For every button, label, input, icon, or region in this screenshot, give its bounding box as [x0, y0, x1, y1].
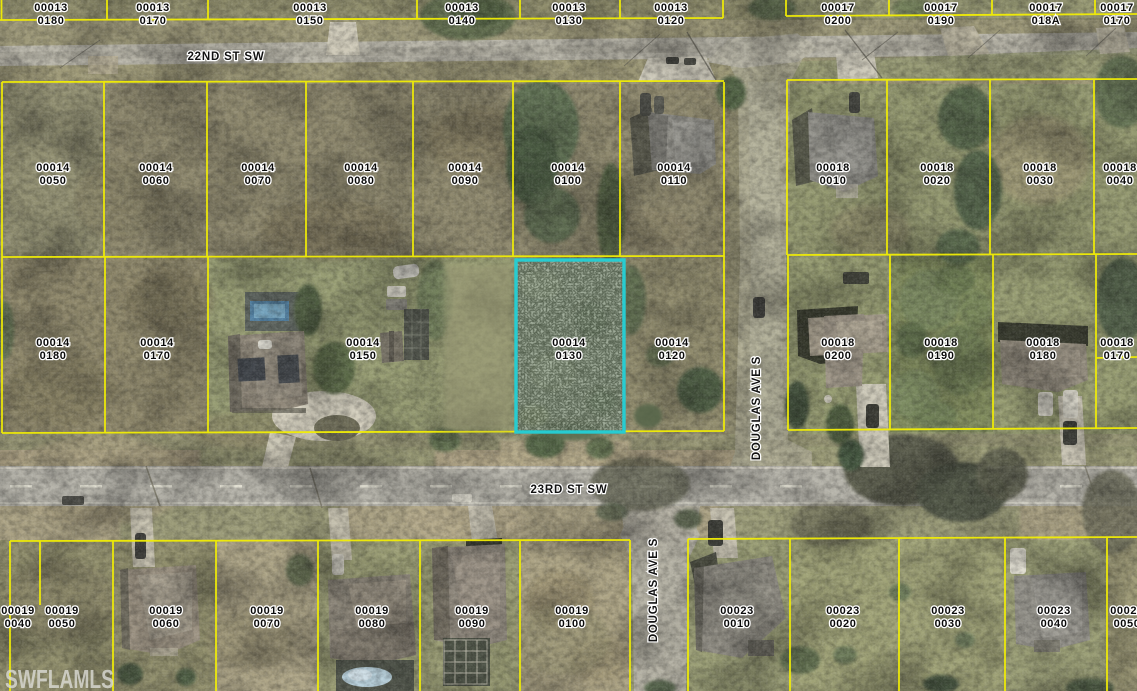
svg-text:000140130: 000140130 — [552, 337, 586, 362]
svg-text:000170190: 000170190 — [924, 2, 958, 27]
svg-text:000130130: 000130130 — [552, 2, 586, 27]
svg-text:DOUGLAS AVE S: DOUGLAS AVE S — [751, 356, 763, 460]
svg-text:000140180: 000140180 — [36, 337, 70, 362]
svg-text:000190100: 000190100 — [555, 605, 589, 630]
svg-text:22ND ST SW: 22ND ST SW — [187, 51, 264, 63]
svg-text:000170170: 000170170 — [1100, 2, 1134, 27]
svg-text:000130120: 000130120 — [654, 2, 688, 27]
svg-text:000140150: 000140150 — [346, 337, 380, 362]
svg-text:000230010: 000230010 — [720, 605, 754, 630]
svg-text:000140090: 000140090 — [448, 162, 482, 187]
svg-text:000190040: 000190040 — [1, 605, 35, 630]
svg-text:000140080: 000140080 — [344, 162, 378, 187]
svg-text:000130140: 000130140 — [445, 2, 479, 27]
svg-text:000140100: 000140100 — [551, 162, 585, 187]
svg-text:000180030: 000180030 — [1023, 162, 1057, 187]
svg-text:000180200: 000180200 — [821, 337, 855, 362]
svg-text:000140120: 000140120 — [655, 337, 689, 362]
svg-text:000140070: 000140070 — [241, 162, 275, 187]
svg-text:000140170: 000140170 — [140, 337, 174, 362]
svg-text:000190050: 000190050 — [45, 605, 79, 630]
svg-text:23RD ST SW: 23RD ST SW — [530, 484, 607, 496]
svg-text:000190070: 000190070 — [250, 605, 284, 630]
svg-text:000140110: 000140110 — [657, 162, 691, 187]
svg-text:000190080: 000190080 — [355, 605, 389, 630]
svg-text:000140060: 000140060 — [139, 162, 173, 187]
svg-text:000190090: 000190090 — [455, 605, 489, 630]
svg-text:000180010: 000180010 — [816, 162, 850, 187]
svg-text:000130150: 000130150 — [293, 2, 327, 27]
svg-text:DOUGLAS AVE S: DOUGLAS AVE S — [648, 538, 660, 642]
svg-text:SWFLAMLS: SWFLAMLS — [5, 664, 114, 691]
svg-text:000190060: 000190060 — [149, 605, 183, 630]
svg-text:000180020: 000180020 — [920, 162, 954, 187]
svg-text:000230030: 000230030 — [931, 605, 965, 630]
svg-text:000130170: 000130170 — [136, 2, 170, 27]
svg-text:000170200: 000170200 — [821, 2, 855, 27]
svg-text:000230050: 000230050 — [1110, 605, 1137, 630]
svg-text:000180040: 000180040 — [1103, 162, 1137, 187]
svg-text:000180180: 000180180 — [1026, 337, 1060, 362]
svg-text:000230040: 000230040 — [1037, 605, 1071, 630]
svg-text:00017018A: 00017018A — [1029, 2, 1063, 27]
svg-text:000140050: 000140050 — [36, 162, 70, 187]
svg-text:000230020: 000230020 — [826, 605, 860, 630]
svg-text:000180190: 000180190 — [924, 337, 958, 362]
svg-text:000130180: 000130180 — [34, 2, 68, 27]
svg-text:000180170: 000180170 — [1100, 337, 1134, 362]
